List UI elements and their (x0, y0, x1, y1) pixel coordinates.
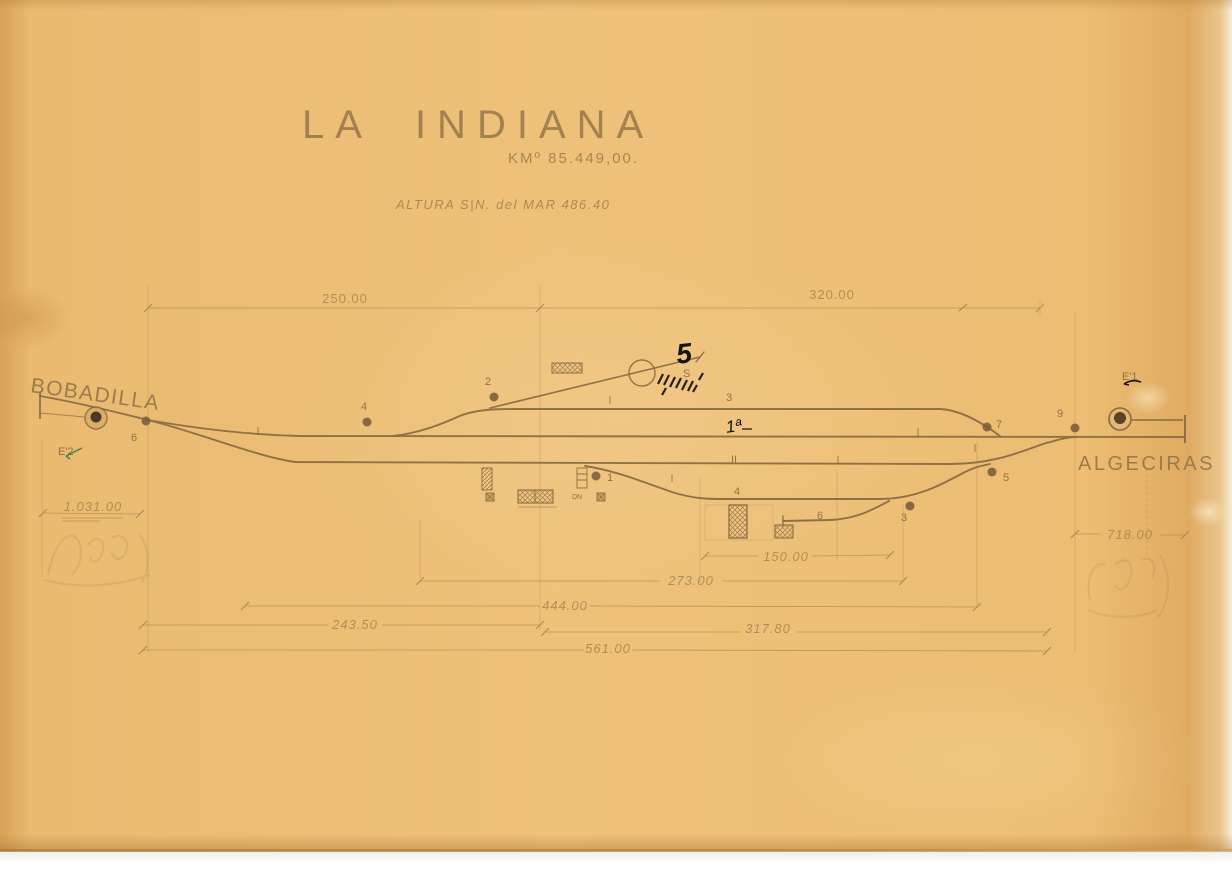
signal-e2-lamp (91, 412, 102, 423)
station-building (518, 490, 553, 503)
switch-dot-1 (592, 472, 601, 481)
track-label-3: 3 (726, 392, 732, 404)
altitude-label: ALTURA S|N. del MAR 486.40 (395, 197, 610, 212)
dimension-lines (43, 308, 1185, 651)
hut-right (597, 493, 605, 501)
switch-dot-6 (142, 417, 151, 426)
switch-label-7: 7 (996, 419, 1002, 431)
siding-track-4 (585, 464, 990, 499)
hut-left (486, 493, 494, 501)
dimension-arrow-ticks (39, 304, 1189, 655)
switch-label-2: 2 (485, 376, 491, 388)
switch-label-6: 6 (131, 432, 137, 444)
switch-label-3: 3 (901, 512, 907, 524)
dim-317: 317.80 (745, 621, 791, 636)
dim-561: 561.00 (585, 641, 631, 656)
scanned-track-diagram: LA INDIANA KMº 85.449,00. ALTURA S|N. de… (0, 0, 1232, 880)
switch-dot-3 (906, 502, 915, 511)
track-label-4: 4 (734, 486, 740, 498)
water-tower (729, 505, 747, 538)
signal-label-e2: E'2 (58, 446, 74, 458)
track-label-ii: II (731, 454, 737, 466)
switch-dot-5 (988, 468, 997, 477)
ink-annotation-5: 5 (675, 337, 694, 370)
platform-left-band (482, 468, 492, 490)
loop-track-ii (148, 420, 1076, 464)
dim-243: 243.50 (331, 617, 378, 632)
switch-dots (142, 393, 1080, 511)
switch-label-5: 5 (1003, 472, 1009, 484)
switch-dot-7 (983, 423, 992, 432)
line-end-markers (40, 392, 1185, 443)
siding-track-3 (393, 409, 1000, 436)
small-store-building (775, 525, 793, 538)
signal-e1-lamp (1114, 412, 1126, 424)
main-track (148, 420, 1185, 437)
track-label-6: 6 (817, 510, 823, 522)
dim-1031: 1.031.00 (64, 499, 123, 514)
building-top-spur (552, 363, 582, 373)
switch-dot-4 (363, 418, 372, 427)
ink-hatching (658, 373, 703, 395)
switch-label-4: 4 (361, 401, 367, 413)
station-plan-drawing: LA INDIANA KMº 85.449,00. ALTURA S|N. de… (0, 0, 1232, 880)
building-code-dn: DN (572, 494, 582, 501)
switch-dot-2 (490, 393, 499, 402)
dim-250: 250.00 (322, 291, 368, 306)
station-title: LA INDIANA (302, 103, 654, 147)
track-label-1a: 1ª (725, 416, 744, 437)
faint-pencil-scribble-left (45, 535, 150, 585)
construction-lines (42, 286, 1147, 652)
turntable-spur (490, 357, 700, 408)
dim-150: 150.00 (763, 549, 809, 564)
switch-dot-9 (1071, 424, 1080, 433)
platform-right-band (577, 468, 587, 488)
dim-718: 718.00 (1107, 527, 1153, 542)
switch-label-9: 9 (1057, 408, 1063, 420)
switch-label-1: 1 (607, 472, 613, 484)
structures: DN (482, 363, 793, 540)
dim-320: 320.00 (809, 287, 855, 302)
destination-algeciras: ALGECIRAS (1078, 453, 1215, 475)
siding-track-6 (783, 501, 889, 521)
left-signal-line (40, 413, 85, 417)
spur-letter-s: S (683, 368, 690, 380)
faint-pencil-scribble-right (1088, 555, 1168, 618)
dim-444: 444.00 (542, 598, 588, 613)
km-post-label: KMº 85.449,00. (508, 150, 639, 167)
track-lines (40, 352, 1185, 526)
dim-273: 273.00 (667, 573, 714, 588)
